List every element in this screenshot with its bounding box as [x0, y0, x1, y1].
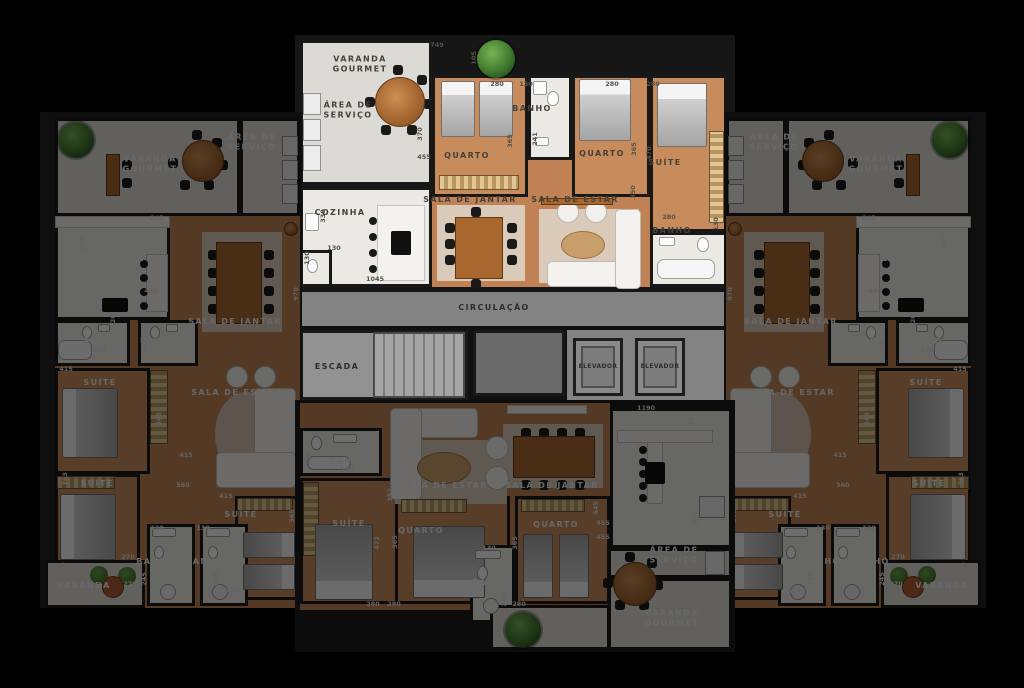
dim-label: 472 — [374, 536, 381, 550]
room-label-quarto: QUARTO — [444, 151, 490, 161]
chair-icon — [507, 255, 517, 265]
utility-sink-icon — [303, 145, 321, 171]
stool-icon — [882, 274, 890, 282]
room-label-sala-jantar: SALA DE JANTAR — [744, 317, 838, 327]
washer-icon — [303, 93, 321, 115]
room-label-banho-suite: BANHO — [652, 226, 691, 236]
sofa — [730, 452, 810, 488]
coffee-table — [561, 231, 605, 259]
sink-icon — [333, 434, 357, 443]
room-label-varanda-gourmet: VARANDA GOURMET — [645, 609, 700, 630]
single-bed — [523, 534, 553, 598]
dryer-icon — [282, 160, 298, 180]
armchair-icon — [778, 366, 800, 388]
dim-label: 365 — [631, 142, 638, 156]
chair-icon — [445, 255, 455, 265]
room-label-quarto: QUARTO — [579, 149, 625, 159]
dim-label: 749 — [576, 636, 590, 643]
room-label-quarto: QUARTO — [533, 520, 579, 530]
dim-label: 415 — [59, 366, 73, 373]
chair-icon — [507, 223, 517, 233]
toilet-icon — [786, 546, 796, 559]
dim-label: 105 — [60, 562, 67, 576]
dim-label: 130 — [879, 339, 886, 353]
dryer-icon — [728, 160, 744, 180]
dim-label: 280 — [340, 467, 354, 474]
dim-label: 845 — [862, 215, 876, 222]
dining-table — [764, 242, 810, 324]
toilet-icon — [311, 436, 322, 450]
room-label-banho: BANHO — [512, 104, 551, 114]
dim-label: 105 — [960, 562, 967, 576]
room-label-elevador-2: ELEVADOR — [641, 363, 680, 371]
chair-icon — [192, 130, 202, 140]
chair-icon — [507, 239, 517, 249]
dim-label: 270 — [92, 347, 106, 354]
armchair-icon — [485, 436, 509, 460]
room-label-sala-jantar: SALA DE JANTAR — [505, 481, 599, 491]
sink-icon — [916, 324, 928, 332]
dim-label: 280 — [490, 81, 504, 88]
stairs-icon — [373, 332, 465, 398]
chair-icon — [381, 125, 391, 135]
dim-label: 270 — [123, 581, 137, 588]
dim-label: 445 — [593, 501, 600, 515]
dim-label: 130 — [519, 81, 533, 88]
armchair-icon — [226, 366, 248, 388]
dim-label: 350 — [941, 237, 948, 251]
cooktop-icon — [898, 298, 924, 312]
dim-label: 392 — [687, 589, 694, 603]
chair-icon — [393, 65, 403, 75]
chair-icon — [471, 207, 481, 217]
dim-label: 470 — [646, 146, 653, 160]
console-table — [906, 154, 920, 196]
dim-label: 280 — [605, 81, 619, 88]
closet-icon — [521, 499, 585, 512]
room-label-varanda-gourmet: VARANDA GOURMET — [123, 155, 178, 176]
dim-label: 560 — [176, 482, 190, 489]
dim-label: 415 — [179, 452, 193, 459]
dim-label: 455 — [417, 154, 431, 161]
single-bed — [479, 81, 513, 137]
room-label-circulacao: CIRCULAÇÃO — [458, 303, 530, 313]
room-label-varanda: VARANDA — [57, 581, 111, 591]
dining-table — [513, 436, 595, 478]
chair-icon — [836, 180, 846, 190]
room-label-area-servico: ÁREA DE SERVIÇO — [323, 101, 372, 122]
closet-icon — [150, 370, 168, 444]
room-label-banho: BANHO — [850, 557, 889, 567]
chair-icon — [264, 304, 274, 314]
armchair-icon — [750, 366, 772, 388]
side-table — [728, 222, 742, 236]
tree-icon — [505, 612, 541, 648]
dim-label: 280 — [366, 601, 380, 608]
dim-label: 365 — [392, 535, 399, 549]
room-label-suite: SUÍTE — [332, 519, 365, 529]
stool-icon — [639, 446, 647, 454]
chair-icon — [264, 250, 274, 260]
room-label-cozinha: COZINHA — [632, 509, 683, 519]
sink-icon — [659, 237, 675, 246]
double-bed — [62, 388, 118, 458]
chair-icon — [264, 286, 274, 296]
chair-icon — [445, 239, 455, 249]
utility-sink-icon — [728, 184, 744, 204]
room-label-suite: SUÍTE — [224, 510, 257, 520]
room-label-suite: SUÍTE — [909, 378, 942, 388]
dim-label: 270 — [121, 554, 135, 561]
dim-label: 130 — [150, 525, 164, 532]
side-table — [284, 222, 298, 236]
closet-icon — [709, 131, 724, 223]
round-dining-table — [182, 140, 224, 182]
chair-icon — [810, 304, 820, 314]
chair-icon — [625, 552, 635, 562]
dim-label: 130 — [196, 525, 210, 532]
round-dining-table — [375, 77, 425, 127]
dim-label: 270 — [889, 581, 903, 588]
dim-label: 430 — [868, 288, 882, 295]
dim-label: 415 — [833, 452, 847, 459]
cooktop-icon — [645, 462, 665, 484]
chair-icon — [264, 268, 274, 278]
dim-label: 845 — [150, 215, 164, 222]
dim-label: 270 — [920, 347, 934, 354]
closet-icon — [858, 370, 876, 444]
cooktop-icon — [102, 298, 128, 312]
room-label-area-servico: ÁREA DE SERVIÇO — [649, 546, 698, 567]
dim-label: 270 — [891, 554, 905, 561]
dim-label: 319 — [258, 193, 265, 207]
double-bed — [579, 79, 631, 141]
shower-icon — [160, 584, 176, 600]
bathtub-icon — [657, 259, 715, 279]
apartment-right-dimmed: VARANDA GOURMET ÁREA DE SERVIÇO COZINHA … — [724, 112, 986, 608]
room-label-area-servico: ÁREA DE SERVIÇO — [749, 133, 798, 154]
room-label-suite: SUÍTE — [912, 479, 945, 489]
core-shaft — [473, 330, 565, 396]
floor-plan: VARANDA GOURMET ÁREA DE SERVIÇO COZINHA … — [0, 0, 1024, 688]
single-bed — [441, 81, 475, 137]
room-label-suite: SUÍTE — [80, 479, 113, 489]
dim-label: 240 — [501, 593, 508, 607]
room-label-suite: SUÍTE — [83, 378, 116, 388]
dim-label: 130 — [816, 525, 830, 532]
room-label-banho: BANHO — [472, 578, 511, 588]
dim-label: 363 — [62, 472, 69, 486]
double-bed — [910, 494, 966, 560]
chair-icon — [894, 178, 904, 188]
washer-icon — [728, 136, 744, 156]
round-dining-table — [613, 562, 657, 606]
stool-icon — [140, 274, 148, 282]
utility-sink-icon — [282, 184, 298, 204]
dim-label: 130 — [851, 331, 865, 338]
stool-icon — [369, 265, 377, 273]
closet-icon — [401, 499, 467, 513]
room-label-varanda: VARANDA — [915, 581, 969, 591]
fridge-icon — [699, 496, 725, 518]
chair-icon — [754, 250, 764, 260]
dim-label: 350 — [630, 185, 637, 199]
dim-label: 130 — [141, 339, 148, 353]
dim-label: 365 — [512, 536, 519, 550]
shower-icon — [533, 81, 547, 95]
dim-label: 280 — [387, 601, 401, 608]
dim-label: 280 — [662, 214, 676, 221]
dim-label: 970 — [293, 287, 300, 301]
chair-icon — [824, 130, 834, 140]
chair-icon — [180, 180, 190, 190]
room-label-sala-estar: SALA DE ESTAR — [531, 195, 619, 205]
armchair-icon — [254, 366, 276, 388]
dim-label: 130 — [482, 545, 496, 552]
tv-console — [507, 405, 587, 414]
room-label-suite: SUÍTE — [648, 158, 681, 168]
dim-label: 330 — [320, 209, 327, 223]
dim-label: 93 — [688, 417, 695, 426]
dim-label: 415 — [793, 493, 807, 500]
chair-icon — [810, 286, 820, 296]
room-label-sala-estar: SALA DE ESTAR — [747, 388, 835, 398]
dim-label: 350 — [79, 237, 86, 251]
stool-icon — [882, 288, 890, 296]
chair-icon — [122, 178, 132, 188]
kitchen-island — [858, 254, 880, 312]
dim-label: 245 — [213, 572, 220, 586]
dim-label: 970 — [727, 287, 734, 301]
dim-label: 120 — [910, 314, 917, 328]
dim-label: 1045 — [366, 276, 384, 283]
double-bed — [60, 494, 116, 560]
dim-label: 345 — [864, 412, 871, 426]
room-label-suite: SUÍTE — [768, 510, 801, 520]
dim-label: 749 — [430, 42, 444, 49]
dim-label: 245 — [879, 572, 886, 586]
dim-label: 280 — [512, 601, 526, 608]
stool-icon — [369, 233, 377, 241]
sink-icon — [836, 528, 860, 537]
building-core: CIRCULAÇÃO ESCADA ELEVADOR ELEVADOR — [295, 292, 732, 404]
tree-icon — [58, 122, 94, 158]
round-dining-table — [802, 140, 844, 182]
chair-icon — [810, 268, 820, 278]
room-label-cozinha: COZINHA — [882, 254, 933, 264]
room-label-sala-estar: SALA DE ESTAR — [400, 481, 488, 491]
cooktop-icon — [391, 231, 411, 255]
dim-label: 352 — [387, 488, 394, 502]
apartment-bottom-dimmed: BANHO SUÍTE SALA DE ESTAR QUARTO SALA DE… — [295, 400, 735, 652]
chair-icon — [471, 279, 481, 289]
dim-label: 280 — [646, 81, 660, 88]
double-bed — [657, 83, 707, 147]
room-label-varanda-gourmet: VARANDA GOURMET — [849, 155, 904, 176]
console-table — [106, 154, 120, 196]
chair-icon — [754, 304, 764, 314]
room-label-sala-jantar: SALA DE JANTAR — [423, 195, 517, 205]
washer-icon — [705, 551, 725, 575]
coffee-table — [417, 452, 471, 484]
dim-label: 270 — [787, 587, 801, 594]
room-label-varanda-gourmet: VARANDA GOURMET — [333, 55, 388, 76]
closet-icon — [439, 175, 519, 190]
single-bed — [731, 532, 783, 558]
single-bed — [731, 564, 783, 590]
double-bed — [315, 524, 373, 600]
double-bed — [908, 388, 964, 458]
dim-label: 319 — [762, 193, 769, 207]
dining-table — [455, 217, 503, 279]
room-cozinha — [610, 408, 732, 548]
stool-icon — [140, 302, 148, 310]
sofa — [615, 209, 641, 289]
room-label-banho: BANHO — [185, 557, 224, 567]
room-label-quarto: QUARTO — [398, 526, 444, 536]
dim-label: 455 — [596, 520, 610, 527]
room-label-banho: BANHO — [136, 557, 175, 567]
stool-icon — [882, 302, 890, 310]
single-bed — [243, 532, 295, 558]
dim-label: 560 — [836, 482, 850, 489]
stool-icon — [369, 217, 377, 225]
dim-label: 363 — [958, 472, 965, 486]
dim-label: 245 — [807, 572, 814, 586]
single-bed — [243, 564, 295, 590]
room-label-sala-jantar: SALA DE JANTAR — [188, 317, 282, 327]
stool-icon — [369, 249, 377, 257]
apartment-left-dimmed: VARANDA GOURMET ÁREA DE SERVIÇO COZINHA … — [40, 112, 302, 608]
chair-icon — [754, 286, 764, 296]
dim-label: 455 — [596, 534, 610, 541]
shower-icon — [844, 584, 860, 600]
washer-icon — [282, 136, 298, 156]
tree-icon — [477, 40, 515, 78]
dim-label: 130 — [862, 525, 876, 532]
dim-label: 241 — [532, 132, 539, 146]
kitchen-island — [146, 254, 168, 312]
dim-label: 337 — [692, 511, 699, 525]
room-label-area-servico: ÁREA DE SERVIÇO — [227, 133, 276, 154]
dim-label: 130 — [304, 251, 311, 265]
dim-label: 130 — [161, 331, 175, 338]
chair-icon — [603, 578, 613, 588]
dryer-icon — [303, 119, 321, 141]
stool-icon — [639, 494, 647, 502]
apartment-top-highlighted: VARANDA GOURMET ÁREA DE SERVIÇO COZINHA … — [295, 35, 735, 293]
room-label-cozinha: COZINHA — [94, 254, 145, 264]
single-bed — [559, 534, 589, 598]
chair-icon — [445, 223, 455, 233]
chair-icon — [417, 75, 427, 85]
dim-label: 270 — [225, 587, 239, 594]
dim-label: 430 — [144, 288, 158, 295]
dim-label: 345 — [156, 412, 163, 426]
room-label-elevador-1: ELEVADOR — [579, 363, 618, 371]
dining-table — [216, 242, 262, 324]
dim-label: 130 — [713, 217, 720, 231]
dim-label: 245 — [141, 572, 148, 586]
dim-label: 370 — [417, 127, 424, 141]
room-label-escada: ESCADA — [315, 362, 360, 372]
chair-icon — [810, 250, 820, 260]
dim-label: 120 — [110, 314, 117, 328]
room-label-banho: BANHO — [801, 557, 840, 567]
tree-icon — [932, 122, 968, 158]
toilet-icon — [697, 237, 709, 252]
dim-label: 1190 — [637, 405, 655, 412]
dim-label: 130 — [327, 245, 341, 252]
dim-label: 415 — [953, 366, 967, 373]
kitchen-counter — [617, 430, 713, 443]
shower-icon — [483, 598, 499, 614]
room-label-sala-estar: SALA DE ESTAR — [191, 388, 279, 398]
sink-icon — [784, 528, 808, 537]
sofa — [216, 452, 296, 488]
dim-label: 130 — [305, 452, 312, 466]
dim-label: 365 — [507, 134, 514, 148]
chair-icon — [754, 268, 764, 278]
dim-label: 415 — [219, 493, 233, 500]
